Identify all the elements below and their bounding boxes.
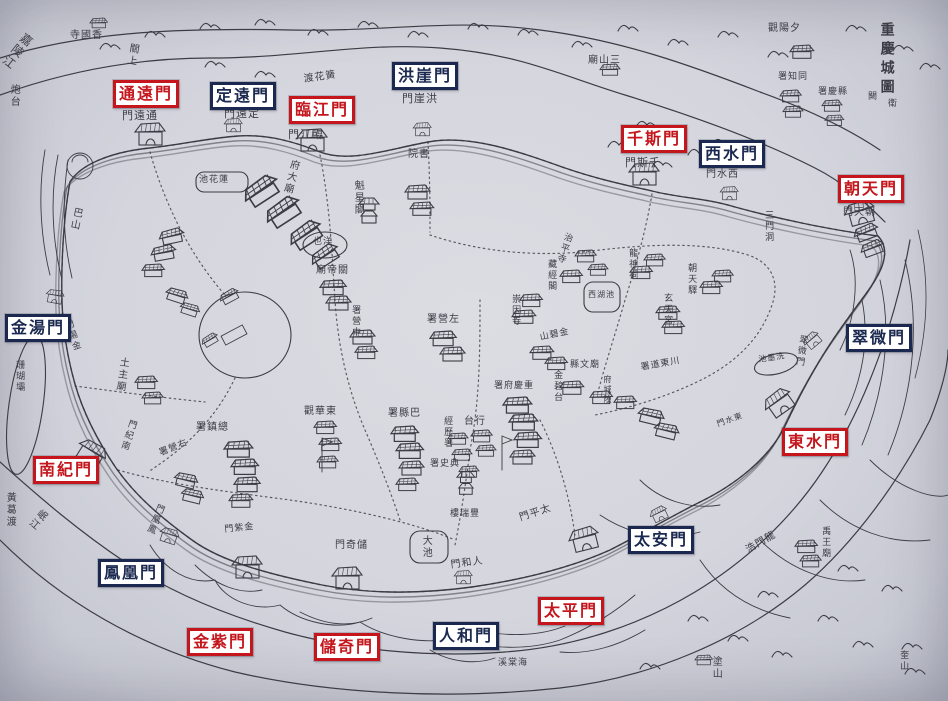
- place-name: 樓瑞豐: [450, 509, 480, 519]
- place-name: 三門洞: [763, 210, 773, 243]
- place-name: 西湖池: [588, 291, 615, 300]
- place-name: 縣文廟: [570, 360, 600, 370]
- place-name: 龍神祠: [627, 248, 637, 281]
- gate-label-太平門[interactable]: 太平門: [538, 597, 604, 625]
- place-name: 門遠通: [122, 110, 158, 122]
- place-name: 嘉陵江: [0, 30, 35, 71]
- place-name: 府大廟: [280, 158, 300, 196]
- chongqing-historic-map: 嘉陵江寺國香關上炮台門遠通門遠定渡花簧門江臨門崖洪廟山三觀陽夕署知同署慶縣重慶城…: [0, 0, 948, 701]
- place-name: 巴山: [67, 206, 83, 232]
- place-name: 院書: [408, 149, 430, 160]
- place-name: 門斯千: [625, 157, 661, 169]
- place-name: 署營中: [350, 305, 360, 338]
- place-name: 金碧台: [552, 370, 562, 403]
- place-name: 藏經閣: [546, 259, 556, 292]
- place-name: 衛: [888, 99, 898, 109]
- gate-label-太安門[interactable]: 太安門: [628, 526, 694, 554]
- place-name: 闕: [868, 92, 878, 102]
- place-name: 門奇儲: [335, 540, 368, 551]
- gate-label-南紀門[interactable]: 南紀門: [33, 456, 99, 484]
- place-name: 經歷署: [442, 416, 452, 449]
- gate-label-臨江門[interactable]: 臨江門: [289, 96, 355, 124]
- place-name: 廟山三: [588, 55, 621, 66]
- place-name: 門紫金: [224, 522, 255, 535]
- place-name: 翠微門: [793, 334, 808, 368]
- place-name: 黃葛渡: [4, 492, 15, 528]
- place-name: 觀華東: [304, 406, 337, 417]
- place-name: 門和人: [450, 555, 484, 571]
- place-name: 玄天宮: [662, 293, 672, 326]
- place-name: 池花蓮: [199, 175, 229, 185]
- place-name: 朝天驛: [686, 263, 696, 296]
- place-name: 署縣巴: [388, 408, 421, 419]
- place-name: 門天朝: [843, 207, 876, 218]
- place-name: 崇因寺: [510, 294, 520, 327]
- place-name: 浩門龍: [744, 530, 778, 556]
- place-name: 魁星閣: [352, 180, 363, 216]
- place-name: 門平太: [518, 503, 553, 524]
- place-name: 署營右: [158, 438, 190, 459]
- map-title: 重慶城圖: [878, 22, 894, 98]
- place-name: 禹王廟: [820, 526, 830, 559]
- place-name: 炮台: [8, 84, 19, 108]
- place-name: 門江臨: [288, 129, 324, 141]
- place-name: 署道東川: [640, 356, 681, 373]
- label-overlay: 嘉陵江寺國香關上炮台門遠通門遠定渡花簧門江臨門崖洪廟山三觀陽夕署知同署慶縣重慶城…: [0, 0, 948, 701]
- place-name: 渡花簧: [303, 69, 337, 85]
- place-name: 署慶縣: [818, 87, 848, 97]
- place-name: 門紀南: [118, 418, 138, 452]
- gate-label-鳳凰門[interactable]: 鳳凰門: [98, 559, 164, 587]
- place-name: 署知同: [778, 72, 808, 82]
- place-name: 台行: [464, 416, 486, 427]
- place-name: 門水西: [706, 169, 739, 180]
- gate-label-東水門[interactable]: 東水門: [782, 428, 848, 456]
- gate-label-朝天門[interactable]: 朝天門: [838, 175, 904, 203]
- gate-label-金紫門[interactable]: 金紫門: [187, 628, 253, 656]
- place-name: 池墨洗: [758, 352, 786, 365]
- gate-label-洪崖門[interactable]: 洪崖門: [392, 62, 458, 90]
- place-name: 門凰鳳: [144, 502, 166, 536]
- gate-label-人和門[interactable]: 人和門: [433, 622, 499, 650]
- place-name: 寺國香: [70, 30, 103, 41]
- place-name: 奎山: [898, 650, 908, 672]
- gate-label-千斯門[interactable]: 千斯門: [621, 125, 687, 153]
- gate-label-金湯門[interactable]: 金湯門: [5, 314, 71, 342]
- place-name: 溪棠海: [498, 658, 528, 668]
- place-name: 署營左: [427, 314, 460, 325]
- place-name: 門崖洪: [402, 93, 438, 105]
- place-name: 廟帝關: [316, 265, 349, 276]
- place-name: 署史典: [430, 459, 460, 469]
- gate-label-翠微門[interactable]: 翠微門: [846, 324, 912, 352]
- place-name: 岷江: [25, 506, 49, 532]
- place-name: 府城隍: [602, 375, 611, 405]
- gate-label-定遠門[interactable]: 定遠門: [210, 82, 276, 110]
- place-name: 觀陽夕: [768, 23, 801, 34]
- place-name: 治平寺: [554, 231, 574, 265]
- gate-label-通遠門[interactable]: 通遠門: [113, 80, 179, 108]
- place-name: 山碧金: [539, 327, 570, 343]
- place-name: 塗山: [710, 656, 721, 680]
- place-name: 署府慶重: [494, 381, 534, 391]
- gate-label-西水門[interactable]: 西水門: [699, 140, 765, 168]
- gate-label-儲奇門[interactable]: 儲奇門: [314, 633, 380, 661]
- place-name: 土主廟: [113, 356, 129, 393]
- place-name: 也洋: [313, 237, 333, 247]
- place-name: 珊瑚壩: [14, 360, 24, 393]
- place-name: 大池: [420, 535, 431, 559]
- place-name: 門水東: [716, 412, 744, 430]
- place-name: 署鎮總: [196, 422, 229, 433]
- place-name: 關上: [124, 42, 139, 68]
